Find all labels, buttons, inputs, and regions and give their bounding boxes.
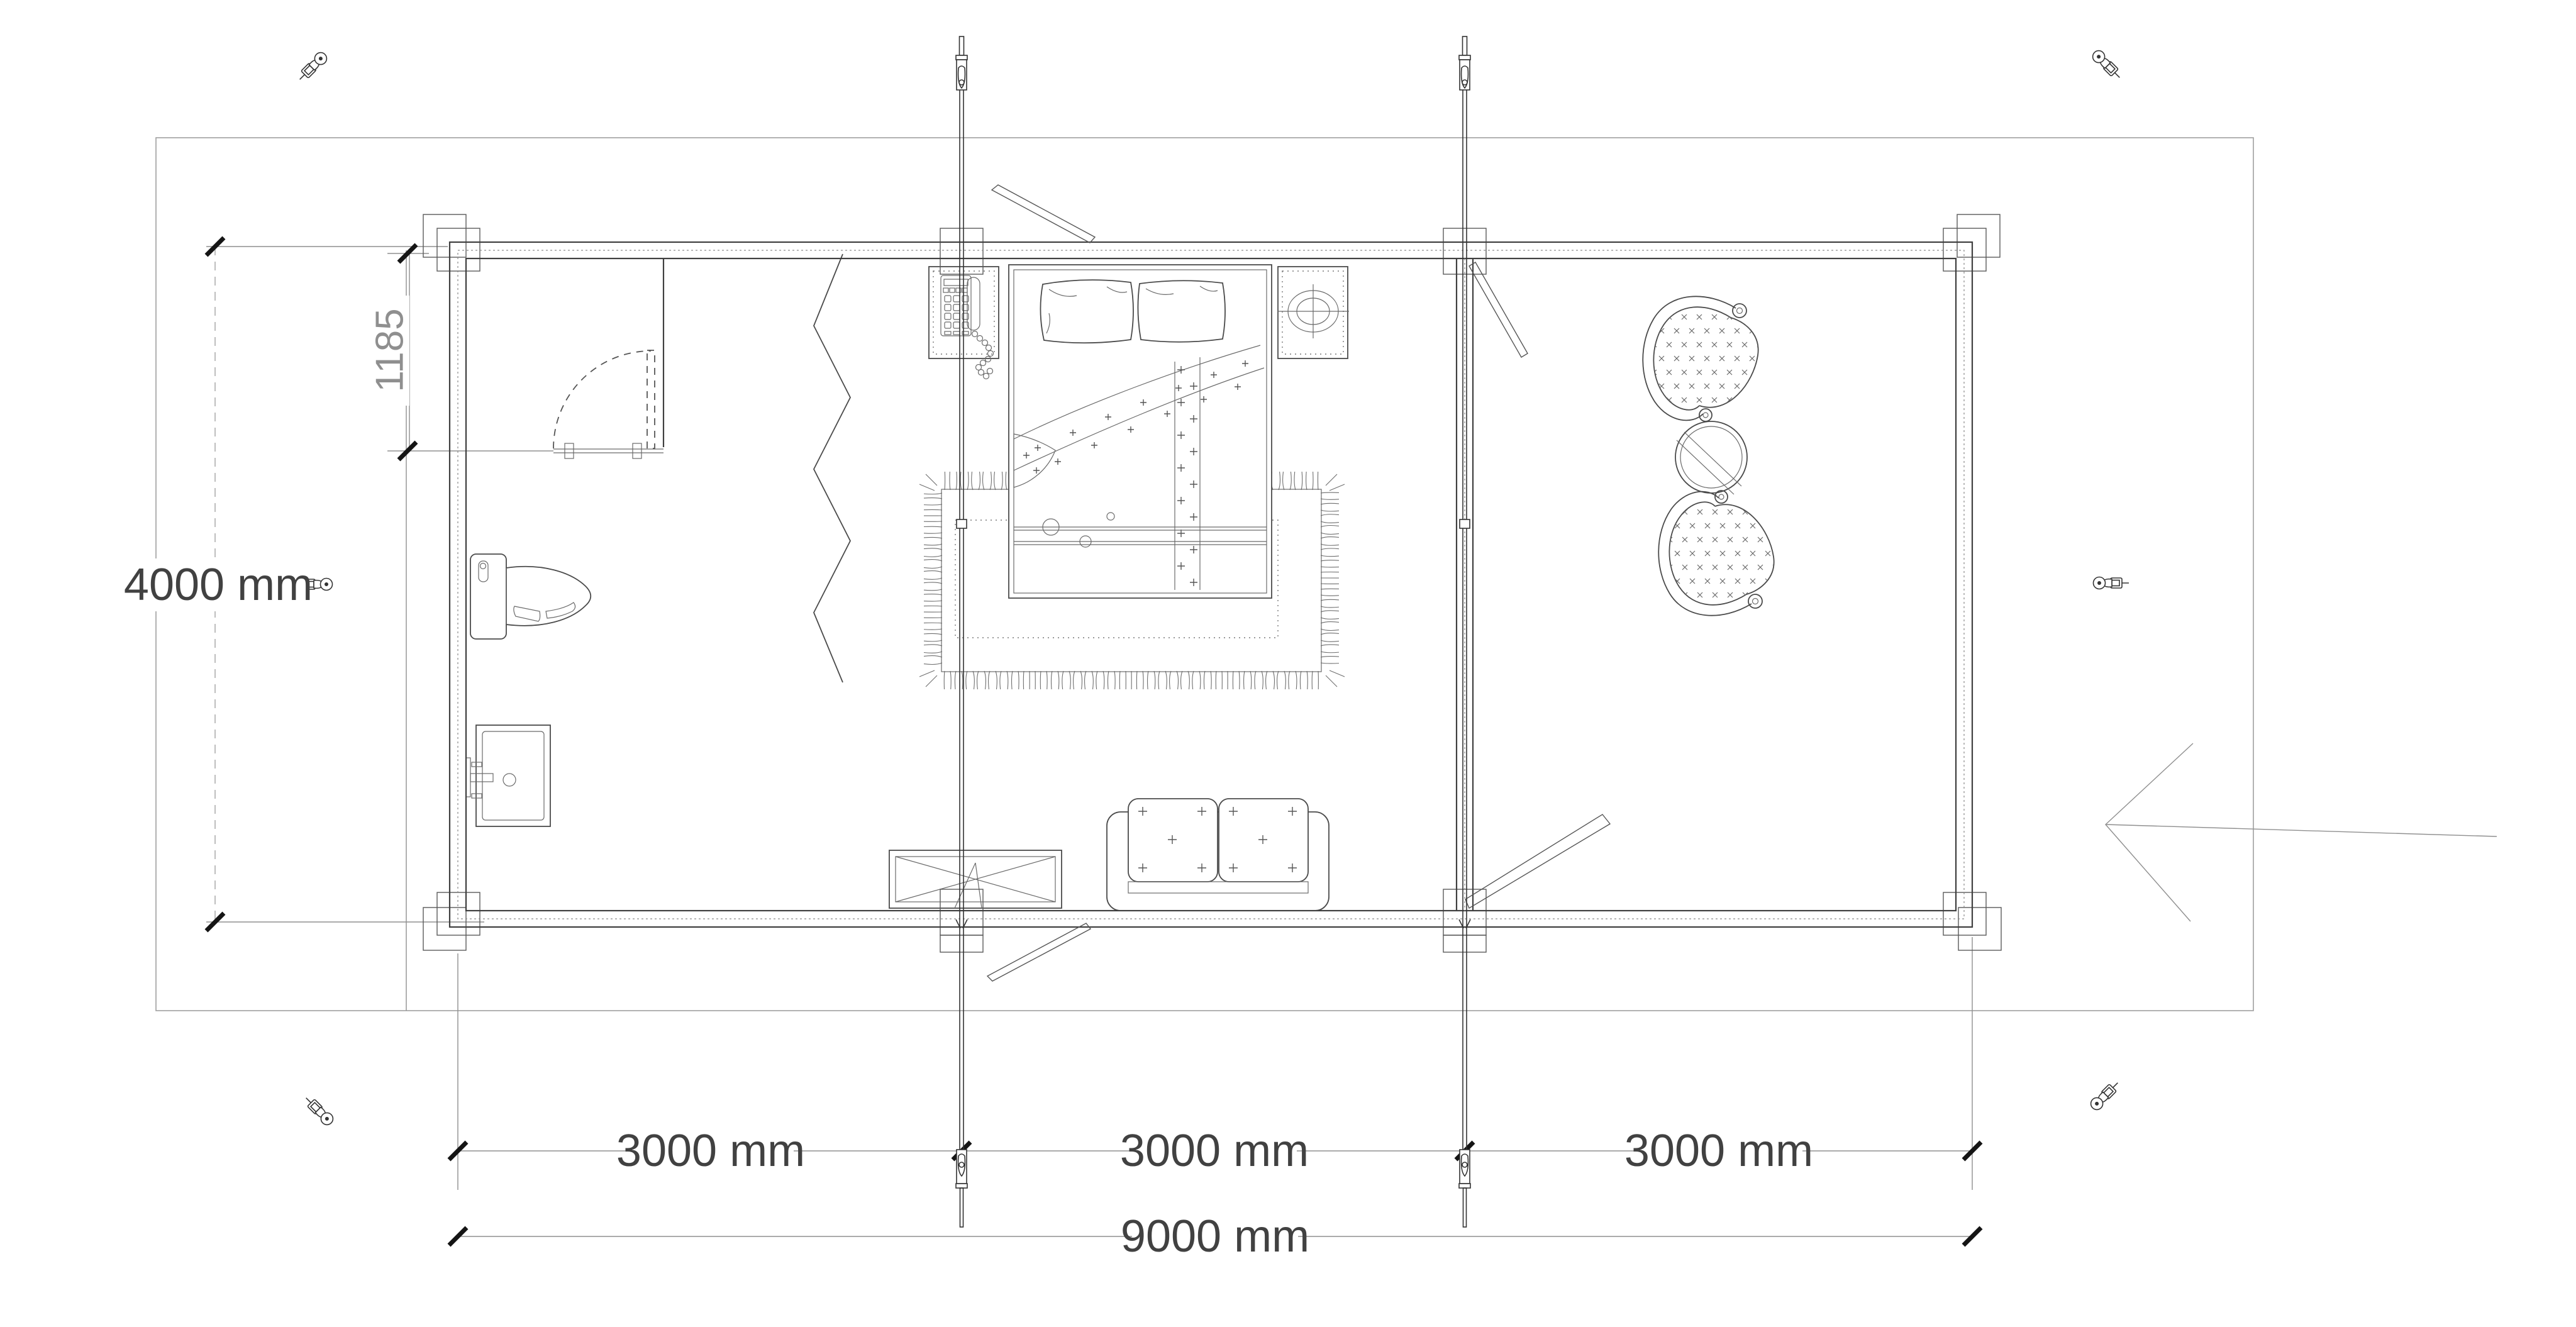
storm-rod-icon-right	[1459, 36, 1470, 1227]
storm-rod-icon-left	[956, 36, 967, 1227]
tub-chair-lower	[1658, 491, 1778, 616]
bath-partition	[553, 258, 663, 458]
pillow-left	[1040, 280, 1133, 343]
dimension-label-9000: 9000 mm	[1121, 1211, 1309, 1262]
nightstand-with-lamp	[1277, 267, 1349, 358]
right-room-furniture	[1643, 296, 1778, 615]
double-bed	[1009, 265, 1272, 598]
washbasin	[466, 725, 550, 826]
dimension-label-3000-1: 3000 mm	[616, 1126, 805, 1176]
sofa	[1107, 799, 1329, 911]
entrance-arrow-icon	[2106, 743, 2497, 921]
storm-rods	[956, 36, 1470, 1227]
anchor-bolt-icon-bottom-right	[2089, 1079, 2122, 1112]
tub-chair-upper	[1643, 296, 1762, 421]
round-table	[1675, 421, 1747, 494]
anchor-bolt-icon-top-right	[2090, 48, 2124, 82]
floor-plan-canvas: 4000 mm 1185 3000 mm 3000 mm 3000 mm 900…	[0, 0, 2576, 1327]
dimension-label-1185: 1185	[369, 308, 412, 392]
storage-chest	[889, 850, 1062, 908]
bath-door	[553, 350, 655, 448]
anchor-bolt-icon-mid-right	[2094, 577, 2129, 589]
anchor-bolt-icon-bottom-left	[302, 1094, 335, 1127]
pillow-right	[1138, 280, 1225, 342]
dimension-label-4000: 4000 mm	[124, 560, 313, 610]
dimension-texts: 4000 mm 1185 3000 mm 3000 mm 3000 mm 900…	[124, 296, 1813, 1262]
partition-wall	[1457, 258, 1473, 911]
furniture-layer	[466, 254, 1349, 911]
dimension-label-3000-3: 3000 mm	[1624, 1126, 1813, 1176]
dimension-label-3000-2: 3000 mm	[1120, 1126, 1309, 1176]
toilet	[470, 554, 591, 639]
zigzag-divider	[814, 254, 850, 682]
anchor-bolt-icon-top-left	[296, 50, 329, 84]
